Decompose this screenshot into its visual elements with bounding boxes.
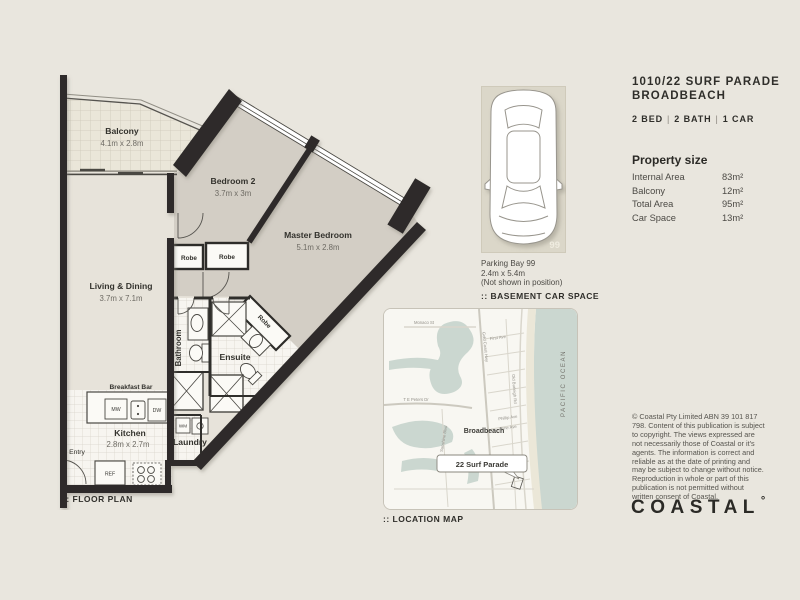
table-row: Balcony 12m² (632, 186, 762, 200)
car-icon (485, 90, 562, 244)
room-label-laundry: Laundry (173, 437, 207, 447)
room-label-bathroom: Bathroom (174, 330, 183, 367)
bathroom-shower-icon (170, 372, 203, 410)
room-label-balcony: Balcony (105, 126, 139, 136)
parking-caption-line2: 2.4m x 5.4m (481, 269, 562, 279)
parking-caption-line1: Parking Bay 99 (481, 259, 562, 269)
breakfast-bar-label: Breakfast Bar (110, 384, 153, 391)
dw-label: DW (153, 408, 162, 414)
bay-number: 99 (549, 240, 560, 251)
ensuite-shower2-icon (210, 375, 243, 412)
logo-text: COASTAL (631, 497, 760, 518)
room-dims-living: 3.7m x 7.1m (100, 294, 143, 303)
room-label-entry: Entry (69, 449, 85, 456)
legal-disclaimer: © Coastal Pty Limited ABN 39 101 817 798… (632, 413, 765, 502)
suburb-label: Broadbeach (464, 428, 504, 435)
laundry-step-wall (165, 460, 197, 493)
page-title: 1010/22 SURF PARADE BROADBEACH (632, 75, 780, 103)
room-label-ensuite: Ensuite (219, 352, 250, 362)
beds-count: 2 BED (632, 114, 663, 124)
spec-separator: | (663, 114, 674, 124)
floor-plan: Balcony 4.1m x 2.8m Bedroom 2 3.7m x 3m … (50, 60, 440, 510)
cooktop-icon (133, 463, 161, 485)
car-roof (507, 131, 540, 183)
robe1-label: Robe (181, 255, 197, 262)
robe2-label: Robe (219, 254, 235, 261)
parking-caption: Parking Bay 99 2.4m x 5.4m (Not shown in… (481, 259, 562, 288)
brochure-page: Balcony 4.1m x 2.8m Bedroom 2 3.7m x 3m … (0, 0, 800, 600)
title-line1: 1010/22 SURF PARADE (632, 75, 780, 89)
street-label: T E Peters Dr (403, 397, 429, 402)
row-label: Internal Area (632, 172, 685, 182)
west-wall (60, 75, 67, 508)
row-value: 12m² (722, 186, 743, 196)
parking-caption-line3: (Not shown in position) (481, 278, 562, 288)
ref-label: REF (105, 472, 115, 478)
location-map: Monaco St First Ave T E Peters Dr Sunshi… (383, 308, 578, 510)
location-map-canvas: Monaco St First Ave T E Peters Dr Sunshi… (384, 309, 577, 509)
row-value: 83m² (722, 172, 743, 182)
property-size-table: Internal Area 83m² Balcony 12m² Total Ar… (632, 172, 762, 226)
ocean-shape (534, 309, 577, 509)
hall-wall-upper (167, 173, 174, 213)
title-line2: BROADBEACH (632, 89, 780, 103)
street-label: Monaco St (414, 320, 435, 325)
coastal-logo: COASTAL° (631, 495, 765, 519)
sink-icon (131, 401, 145, 419)
mw-label: MW (111, 407, 120, 413)
cars-count: 1 CAR (723, 114, 755, 124)
room-label-living: Living & Dining (89, 281, 152, 291)
room-label-bedroom2: Bedroom 2 (211, 176, 256, 186)
basement-car-space-caption: :: BASEMENT CAR SPACE (481, 291, 599, 301)
row-label: Car Space (632, 213, 676, 223)
room-label-kitchen: Kitchen (114, 428, 146, 438)
spec-separator: | (712, 114, 723, 124)
room-dims-master: 5.1m x 2.8m (297, 243, 340, 252)
table-row: Total Area 95m² (632, 199, 762, 213)
bathroom-toilet-icon (190, 344, 210, 362)
ocean-label: PACIFIC OCEAN (561, 350, 567, 417)
south-wall (60, 485, 172, 493)
logo-degree-mark: ° (761, 495, 765, 507)
row-value: 95m² (722, 199, 743, 209)
parking-bay-diagram: 99 (481, 86, 566, 253)
baths-count: 2 BATH (674, 114, 711, 124)
row-label: Balcony (632, 186, 665, 196)
row-label: Total Area (632, 199, 673, 209)
table-row: Internal Area 83m² (632, 172, 762, 186)
property-size-heading: Property size (632, 153, 707, 167)
room-label-master: Master Bedroom (284, 230, 352, 240)
specs-line: 2 BED|2 BATH|1 CAR (632, 114, 754, 124)
room-dims-kitchen: 2.8m x 2.7m (107, 440, 150, 449)
room-dims-balcony: 4.1m x 2.8m (101, 139, 144, 148)
row-value: 13m² (722, 213, 743, 223)
location-map-caption: :: LOCATION MAP (383, 514, 464, 524)
pin-label: 22 Surf Parade (456, 460, 509, 469)
wm-label: WM (179, 424, 187, 429)
car-rear-window (505, 106, 542, 129)
room-dims-bedroom2: 3.7m x 3m (215, 189, 251, 198)
table-row: Car Space 13m² (632, 213, 762, 227)
bathroom-vanity-icon (188, 308, 208, 340)
hall-wall-lower (167, 238, 174, 463)
floor-plan-caption: :: FLOOR PLAN (63, 494, 133, 504)
